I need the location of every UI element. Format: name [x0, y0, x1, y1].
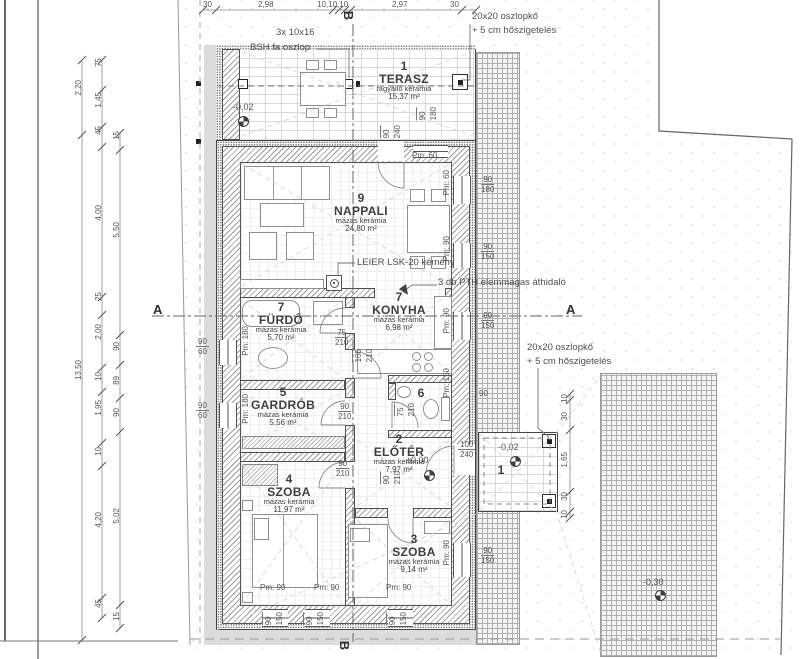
- opening-height: 180: [428, 107, 439, 120]
- dim-label: 1,95: [94, 400, 103, 416]
- dim-label: Pm: 60: [412, 151, 437, 160]
- room-num: 5: [251, 386, 315, 399]
- room-label-szoba3: 3SZOBAmázas kerámia9,14 m²: [389, 533, 440, 575]
- dim-label: 75: [94, 58, 103, 67]
- opening-dim: 100240: [458, 440, 475, 459]
- dim-label: Pm: 90: [442, 540, 451, 565]
- dim-label: 90: [112, 342, 121, 351]
- opening-height: 210: [406, 403, 417, 416]
- opening-width: 90: [481, 242, 494, 252]
- labels-layer: 1TERASZfagyálló kerámia15,37 m²9NAPPALIm…: [0, 0, 800, 659]
- opening-height: 210: [338, 412, 351, 421]
- opening-width: 75: [335, 328, 348, 338]
- annotation: BSH fa oszlop: [250, 42, 310, 53]
- room-num: 1: [377, 60, 432, 73]
- dim-label: 90: [479, 389, 488, 398]
- opening-height: 150: [481, 556, 494, 565]
- room-label-konyha: 7KONYHAmázas kerámia6,98 m²: [372, 291, 426, 333]
- dim-label: Pm: 60: [442, 170, 451, 195]
- dim-label: 10: [560, 394, 569, 403]
- opening-dim: 75210: [394, 403, 417, 416]
- annotation: 20x20 oszlopkő: [527, 342, 593, 353]
- opening-height: 240: [392, 125, 403, 138]
- opening-width: 90: [481, 175, 494, 185]
- room-num: 7: [372, 291, 426, 304]
- dim-label: 45: [94, 599, 103, 608]
- dim-label: 90: [112, 408, 121, 417]
- dim-label: 10,10,10: [317, 0, 348, 9]
- room-label-wc: 6: [418, 387, 425, 400]
- dim-label: Pm: 90: [442, 308, 451, 333]
- dim-label: 1,45: [94, 92, 103, 108]
- room-area: 11,97 m²: [264, 506, 315, 514]
- opening-width: 100: [352, 349, 364, 362]
- section-marker: B: [337, 641, 352, 650]
- annotation: 3x 10x16: [276, 27, 315, 38]
- room-label-porch: 1: [498, 464, 505, 477]
- section-marker: A: [153, 302, 162, 317]
- dim-label: Pm: 90: [314, 583, 339, 592]
- annotation: + 5 cm hőszigetelés: [472, 25, 556, 36]
- dim-label: 89: [112, 376, 121, 385]
- opening-width: 90: [481, 311, 494, 321]
- annotation: LEIER LSK-20 kémény: [357, 257, 455, 268]
- level-value: -0,02: [498, 443, 519, 452]
- opening-width: 75: [394, 403, 406, 416]
- opening-dim: 90150: [481, 311, 494, 330]
- dim-label: 5,02: [112, 508, 121, 524]
- opening-height: 60: [198, 411, 207, 420]
- opening-height: 210: [335, 338, 348, 347]
- opening-dim: 90150: [481, 242, 494, 261]
- opening-dim: 90240: [380, 125, 403, 138]
- opening-width: 90: [303, 612, 315, 625]
- dim-label: 30: [450, 0, 459, 9]
- opening-width: 90: [196, 401, 209, 411]
- level-value: -0,30: [643, 578, 664, 587]
- room-area: 5,70 m²: [256, 334, 307, 342]
- level-marker-icon: [238, 116, 249, 127]
- room-area: 5,56 m²: [251, 419, 315, 427]
- opening-width: 90: [380, 125, 392, 138]
- level-marker-icon: [655, 590, 666, 601]
- dim-label: Pm: 90: [386, 583, 411, 592]
- dim-label: 2,97: [392, 0, 408, 9]
- opening-height: 210: [336, 469, 349, 478]
- opening-height: 60: [198, 347, 207, 356]
- opening-dim: 90150: [386, 612, 409, 625]
- dim-label: Pm: 150: [442, 368, 451, 398]
- dim-label: 2,20: [74, 80, 83, 96]
- dim-label: Pm: 90: [260, 583, 285, 592]
- opening-height: 210: [364, 349, 375, 362]
- room-label-nappali: 9NAPPALImázas kerámia24,80 m²: [334, 192, 388, 234]
- opening-dim: 90150: [262, 612, 285, 625]
- opening-height: 150: [274, 612, 285, 625]
- dim-label: 15: [112, 612, 121, 621]
- dim-label: 1,65: [560, 452, 569, 468]
- room-label-terasz: 1TERASZfagyálló kerámia15,37 m²: [377, 60, 432, 102]
- room-area: 6,98 m²: [372, 324, 426, 332]
- opening-height: 150: [398, 612, 409, 625]
- opening-dim: 75210: [335, 328, 348, 347]
- dim-label: 30: [203, 0, 212, 9]
- opening-height: 240: [460, 450, 473, 459]
- room-num: 2: [374, 433, 425, 446]
- dim-label: 30: [560, 412, 569, 421]
- room-label-szoba4: 4SZOBAmázas kerámia11,97 m²: [264, 473, 315, 515]
- room-label-furdo: 7FÜRDŐmázas kerámia5,70 m²: [256, 301, 307, 343]
- dim-label: 10: [94, 447, 103, 456]
- room-area: 24,80 m²: [334, 225, 388, 233]
- opening-width: 90: [481, 546, 494, 556]
- opening-height: 150: [481, 321, 494, 330]
- dim-label: 15: [112, 131, 121, 140]
- dim-label: 4,00: [94, 205, 103, 221]
- annotation: 20x20 oszlopkő: [472, 11, 538, 22]
- opening-width: 90: [386, 612, 398, 625]
- annotation: 3 db PTH elemmagas áthidaló: [438, 277, 566, 288]
- opening-width: 100: [458, 440, 475, 450]
- annotation: + 5 cm hőszigetelés: [527, 356, 611, 367]
- level-marker-icon: [424, 470, 435, 481]
- room-num: 1: [498, 464, 505, 477]
- dim-label: 30: [560, 492, 569, 501]
- room-num: 7: [256, 301, 307, 314]
- opening-height: 150: [315, 612, 326, 625]
- opening-width: 90: [416, 107, 428, 120]
- opening-dim: 100210: [352, 349, 375, 362]
- dim-label: Pm: 180: [241, 326, 250, 356]
- opening-height: 150: [481, 252, 494, 261]
- opening-dim: 90210: [338, 402, 351, 421]
- room-label-eloter: 2ELŐTÉRmázas kerámia7,97 m²: [374, 433, 425, 475]
- opening-dim: 9060: [196, 337, 209, 356]
- dim-label: 4,20: [94, 512, 103, 528]
- section-marker: A: [566, 302, 575, 317]
- dim-label: 10: [560, 510, 569, 519]
- room-area: 7,97 m²: [374, 466, 425, 474]
- room-num: 4: [264, 473, 315, 486]
- opening-dim: 9060: [196, 401, 209, 420]
- dim-label: 2,98: [258, 0, 274, 9]
- room-num: 6: [418, 387, 425, 400]
- level-value: -0,02: [233, 103, 254, 112]
- room-num: 3: [389, 533, 440, 546]
- opening-dim: 90150: [303, 612, 326, 625]
- dim-label: 2,00: [94, 324, 103, 340]
- opening-width: 90: [338, 402, 351, 412]
- opening-dim: 90150: [481, 546, 494, 565]
- dim-label: Pm: 180: [241, 394, 250, 424]
- dim-label: 10: [94, 372, 103, 381]
- section-marker: B: [341, 11, 356, 20]
- room-num: 9: [334, 192, 388, 205]
- opening-height: 180: [481, 185, 494, 194]
- dim-label: 25: [94, 292, 103, 301]
- room-label-gardrob: 5GARDRÓBmázas kerámia5,56 m²: [251, 386, 315, 428]
- opening-width: 90: [262, 612, 274, 625]
- floor-plan-canvas: 1TERASZfagyálló kerámia15,37 m²9NAPPALIm…: [0, 0, 800, 659]
- level-marker-icon: [510, 456, 521, 467]
- dim-label: 13,50: [74, 360, 83, 380]
- opening-width: 90: [196, 337, 209, 347]
- dim-label: 5,50: [112, 222, 121, 238]
- dim-label: 45: [94, 126, 103, 135]
- opening-width: 90: [336, 459, 349, 469]
- room-area: 15,37 m²: [377, 93, 432, 101]
- room-area: 9,14 m²: [389, 566, 440, 574]
- opening-dim: 90180: [416, 107, 439, 120]
- opening-dim: 90210: [336, 459, 349, 478]
- opening-dim: 90180: [481, 175, 494, 194]
